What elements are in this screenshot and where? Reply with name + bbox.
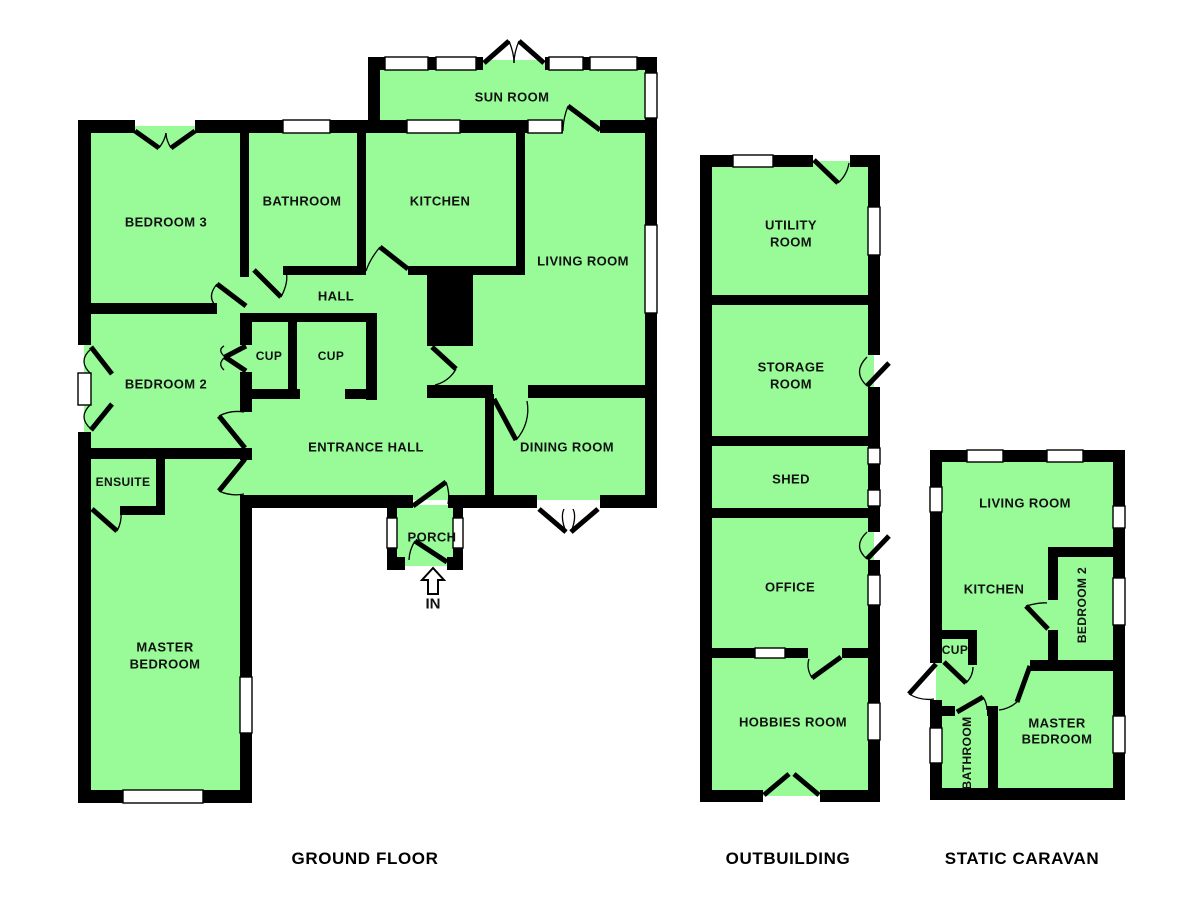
wall [868, 506, 880, 532]
wall [485, 394, 494, 501]
wall [453, 505, 463, 518]
room-label-office: OFFICE [765, 580, 815, 595]
room-label-bathroom: BATHROOM [960, 717, 974, 790]
window [733, 155, 773, 167]
wall [645, 57, 657, 73]
room-label-bedroom: BEDROOM [130, 657, 201, 672]
wall [427, 385, 493, 398]
window [930, 728, 942, 763]
wall [1030, 660, 1125, 671]
window [387, 518, 397, 548]
wall [868, 740, 880, 802]
wall [700, 155, 712, 802]
room-label-kitchen: KITCHEN [410, 194, 471, 209]
wall [288, 313, 297, 399]
room-label-ensuite: ENSUITE [96, 475, 151, 489]
wall [240, 733, 252, 803]
wall [243, 313, 377, 322]
window [1047, 450, 1083, 462]
room-label-bedroom-2: BEDROOM 2 [1075, 567, 1089, 643]
room-label-hall: HALL [318, 289, 354, 304]
window [283, 120, 330, 133]
window [240, 677, 252, 733]
title-outbuilding: OUTBUILDING [726, 849, 851, 868]
room-label-cup: CUP [318, 349, 345, 363]
window [385, 57, 428, 70]
title-ground-floor: GROUND FLOOR [292, 849, 439, 868]
wall [240, 448, 252, 460]
wall [930, 450, 942, 487]
wall [283, 266, 365, 275]
room-label-room: ROOM [770, 377, 812, 392]
chimney-block [427, 266, 473, 346]
room-label-kitchen: KITCHEN [964, 582, 1025, 597]
room-label-living-room: LIVING ROOM [979, 496, 1071, 511]
window [590, 57, 637, 70]
wall [868, 560, 880, 575]
title-static-caravan: STATIC CARAVAN [945, 849, 1099, 868]
wall [1113, 450, 1125, 506]
wall [1048, 630, 1058, 665]
room-label-room: ROOM [770, 235, 812, 250]
wall [240, 313, 252, 345]
room-label-bedroom-2: BEDROOM 2 [125, 377, 207, 392]
wall [930, 512, 942, 663]
window [645, 225, 657, 313]
wall [78, 120, 91, 345]
wall [516, 126, 525, 275]
window [868, 448, 880, 464]
wall [1113, 753, 1125, 800]
room-label-master: MASTER [1028, 716, 1086, 731]
room-label-living-room: LIVING ROOM [537, 254, 629, 269]
window [645, 73, 657, 118]
wall [368, 57, 380, 133]
window [1113, 506, 1125, 528]
wall [706, 295, 874, 305]
wall [240, 372, 252, 412]
wall [868, 387, 880, 448]
wall [868, 255, 880, 355]
window [868, 703, 880, 740]
wall [453, 548, 463, 570]
room-label-cup: CUP [942, 643, 969, 657]
wall [78, 303, 217, 314]
window [549, 57, 583, 70]
window [123, 790, 203, 803]
room-label-storage: STORAGE [758, 360, 825, 375]
window [407, 120, 460, 133]
room-label-entrance-hall: ENTRANCE HALL [308, 440, 424, 455]
window [868, 207, 880, 255]
window [755, 648, 785, 658]
room-label-utility: UTILITY [765, 218, 817, 233]
room-label-hobbies-room: HOBBIES ROOM [739, 715, 847, 730]
window [436, 57, 476, 70]
room-label-cup: CUP [256, 349, 283, 363]
room-label-shed: SHED [772, 472, 810, 487]
wall [240, 120, 249, 277]
room-label-dining-room: DINING ROOM [520, 440, 614, 455]
window [1113, 716, 1125, 753]
wall [387, 548, 397, 570]
entrance-label: IN [426, 596, 441, 613]
wall [1113, 625, 1125, 716]
room-label-bedroom-3: BEDROOM 3 [125, 215, 207, 230]
window [930, 487, 942, 512]
wall [988, 706, 998, 800]
floorplan-svg: INSUN ROOMBEDROOM 3BATHROOMKITCHENLIVING… [0, 0, 1200, 908]
wall [706, 508, 874, 518]
wall [706, 436, 874, 446]
wall [240, 495, 252, 677]
wall [357, 120, 366, 275]
wall [868, 155, 880, 207]
wall [785, 648, 808, 658]
room-label-master: MASTER [136, 640, 193, 655]
wall [930, 700, 942, 728]
wall [968, 630, 977, 665]
window [78, 373, 91, 405]
window [868, 575, 880, 605]
room-label-sun-room: SUN ROOM [475, 90, 550, 105]
window [528, 120, 562, 133]
wall [868, 605, 880, 703]
floorplan-page: INSUN ROOMBEDROOM 3BATHROOMKITCHENLIVING… [0, 0, 1200, 908]
wall [156, 448, 165, 511]
wall [706, 648, 755, 658]
wall [366, 313, 377, 400]
room-label-bathroom: BATHROOM [263, 194, 342, 209]
room-label-porch: PORCH [408, 530, 457, 545]
wall [1048, 547, 1058, 600]
window [868, 490, 880, 506]
wall [645, 118, 657, 225]
wall [528, 385, 657, 398]
wall [387, 505, 397, 518]
wall [78, 432, 91, 803]
wall [645, 313, 657, 508]
room-label-bedroom: BEDROOM [1022, 732, 1093, 747]
wall [1113, 528, 1125, 578]
wall [930, 450, 1125, 462]
window [1113, 578, 1125, 625]
window [967, 450, 1003, 462]
wall [868, 464, 880, 490]
wall [930, 763, 942, 800]
